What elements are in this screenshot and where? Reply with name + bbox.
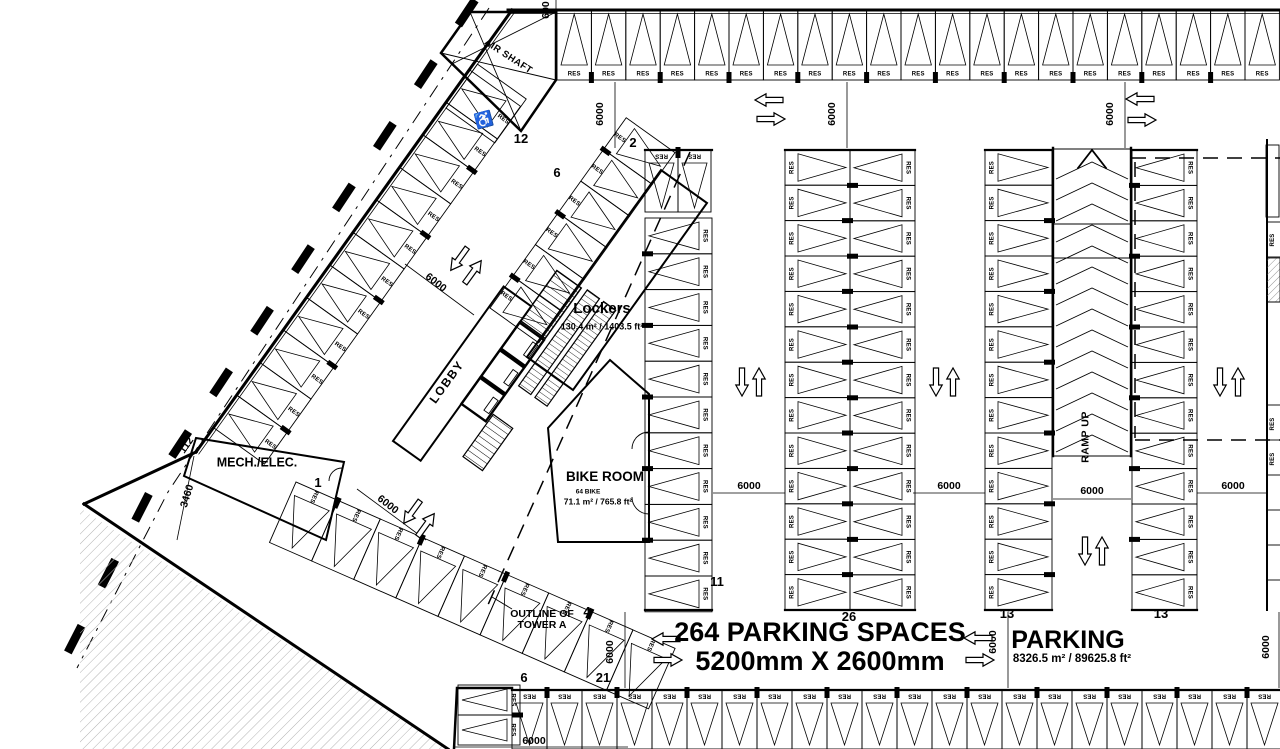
traffic-arrow	[1096, 537, 1108, 565]
leader-line	[492, 597, 512, 609]
svg-text:RES: RES	[1223, 693, 1236, 699]
dimension-label: 6000	[826, 102, 838, 126]
stall-count-labels: 12621112613134216	[314, 131, 1168, 685]
svg-text:RES: RES	[790, 232, 796, 245]
svg-text:RES: RES	[912, 72, 925, 78]
svg-text:RES: RES	[905, 303, 911, 316]
svg-text:RES: RES	[1187, 338, 1193, 351]
door-arc	[632, 497, 649, 514]
svg-text:RES: RES	[990, 409, 996, 422]
svg-text:RES: RES	[1084, 72, 1097, 78]
lockers-label: Lockers	[573, 301, 631, 317]
svg-text:RES: RES	[809, 72, 822, 78]
svg-text:RES: RES	[350, 508, 361, 522]
svg-text:RES: RES	[568, 72, 581, 78]
svg-text:RES: RES	[990, 586, 996, 599]
svg-text:RES: RES	[1187, 515, 1193, 528]
stair-small	[463, 414, 513, 470]
traffic-arrow	[460, 257, 486, 287]
svg-text:RES: RES	[990, 444, 996, 457]
svg-text:RES: RES	[905, 409, 911, 422]
svg-text:RES: RES	[1153, 693, 1166, 699]
svg-text:RES: RES	[1270, 418, 1276, 431]
svg-text:RES: RES	[768, 693, 781, 699]
svg-text:RES: RES	[790, 303, 796, 316]
svg-text:RES: RES	[981, 72, 994, 78]
svg-text:RES: RES	[392, 527, 403, 541]
stall-count: 1	[314, 475, 321, 490]
stall-group-colA: RESRESRESRESRESRESRESRESRESRESRES	[642, 218, 712, 612]
svg-text:RES: RES	[905, 161, 911, 174]
traffic-arrow	[753, 368, 765, 396]
svg-text:RES: RES	[1187, 409, 1193, 422]
traffic-arrow	[1079, 537, 1091, 565]
stall-count: 6	[520, 670, 527, 685]
floor-plan: RESRESRES RESRESRESRESRESRESRESRESRESRES…	[0, 0, 1280, 749]
svg-text:RES: RES	[790, 550, 796, 563]
dimension-label: 6000	[604, 640, 616, 664]
svg-text:RES: RES	[1187, 232, 1193, 245]
dimension-label: 600	[540, 1, 552, 19]
svg-text:RES: RES	[990, 550, 996, 563]
dimension-label: 6000	[1080, 485, 1104, 497]
elevator-1	[461, 378, 504, 421]
svg-text:RES: RES	[702, 373, 708, 386]
svg-text:RES: RES	[774, 72, 787, 78]
stall-group-bottom-left-pair: RESRES	[458, 685, 523, 745]
svg-text:RES: RES	[990, 267, 996, 280]
dimension-label: 6000	[594, 102, 606, 126]
svg-text:RES: RES	[702, 337, 708, 350]
svg-text:RES: RES	[790, 161, 796, 174]
dimension-label: 6000	[423, 271, 449, 295]
traffic-arrow	[930, 368, 942, 396]
bike-count-label: 64 BIKE	[576, 490, 601, 497]
svg-text:RES: RES	[943, 693, 956, 699]
bike-area-label: 71.1 m² / 765.8 ft²	[564, 498, 633, 507]
svg-text:RES: RES	[1013, 693, 1026, 699]
svg-text:RES: RES	[803, 693, 816, 699]
svg-text:RES: RES	[519, 582, 530, 596]
stall-group-colD: RESRESRESRESRESRESRESRESRESRESRESRESRES	[1129, 150, 1197, 610]
ramp-up-label: RAMP UP	[1080, 411, 1091, 463]
traffic-arrow	[1232, 368, 1244, 396]
traffic-arrow	[757, 113, 785, 125]
svg-text:RES: RES	[790, 267, 796, 280]
column-caps	[645, 150, 1197, 610]
svg-text:RES: RES	[705, 72, 718, 78]
title-spaces: 264 PARKING SPACES	[674, 618, 966, 646]
svg-text:RES: RES	[1015, 72, 1028, 78]
svg-text:RES: RES	[905, 197, 911, 210]
svg-text:RES: RES	[733, 693, 746, 699]
elevator-2	[481, 350, 524, 393]
svg-text:RES: RES	[510, 724, 516, 737]
svg-text:RES: RES	[1187, 267, 1193, 280]
svg-text:RES: RES	[946, 72, 959, 78]
svg-text:RES: RES	[602, 72, 615, 78]
svg-text:RES: RES	[477, 564, 488, 578]
svg-text:RES: RES	[637, 72, 650, 78]
svg-text:RES: RES	[990, 161, 996, 174]
svg-text:RES: RES	[1256, 72, 1269, 78]
svg-text:RES: RES	[702, 516, 708, 529]
svg-text:RES: RES	[1270, 234, 1276, 247]
svg-text:RES: RES	[790, 480, 796, 493]
stall-count: 21	[596, 670, 610, 685]
tower-outline-line2: TOWER A	[510, 620, 574, 631]
svg-text:RES: RES	[790, 373, 796, 386]
svg-text:RES: RES	[905, 586, 911, 599]
stall-group-colB-left: RESRESRESRESRESRESRESRESRESRESRESRESRES	[785, 150, 853, 610]
svg-text:RES: RES	[1118, 693, 1131, 699]
svg-text:RES: RES	[905, 267, 911, 280]
svg-text:RES: RES	[1187, 72, 1200, 78]
svg-text:RES: RES	[905, 338, 911, 351]
svg-text:RES: RES	[1048, 693, 1061, 699]
dimension-label: 6000	[737, 480, 761, 492]
stall-group-colC: RESRESRESRESRESRESRESRESRESRESRESRESRES	[985, 150, 1055, 610]
dimension-label: 6000	[987, 630, 999, 654]
stall-count: 13	[1154, 606, 1168, 621]
svg-text:RES: RES	[790, 338, 796, 351]
svg-text:RES: RES	[990, 303, 996, 316]
svg-text:RES: RES	[702, 229, 708, 242]
stall-count: 12	[514, 131, 528, 146]
svg-text:RES: RES	[702, 480, 708, 493]
svg-text:RES: RES	[978, 693, 991, 699]
svg-text:RES: RES	[698, 693, 711, 699]
dimension-label: 6000	[1221, 480, 1245, 492]
svg-text:RES: RES	[1187, 444, 1193, 457]
traffic-arrow	[1128, 114, 1156, 126]
svg-text:RES: RES	[1188, 693, 1201, 699]
bike-room	[548, 360, 649, 542]
parking-area: 8326.5 m² / 89625.8 ft²	[1013, 653, 1131, 665]
dimension-label: 6000	[375, 493, 401, 517]
stall-count: 4	[583, 604, 591, 619]
svg-text:RES: RES	[593, 693, 606, 699]
svg-text:RES: RES	[790, 586, 796, 599]
svg-text:RES: RES	[523, 693, 536, 699]
dimension-label: 6000	[937, 480, 961, 492]
svg-text:RES: RES	[790, 444, 796, 457]
ramp-arrow	[1078, 150, 1106, 168]
traffic-arrow	[947, 368, 959, 396]
svg-text:RES: RES	[1187, 586, 1193, 599]
svg-text:RES: RES	[905, 551, 911, 564]
stall-count: 13	[1000, 606, 1014, 621]
mech-elec-label: MECH./ELEC.	[217, 456, 298, 469]
svg-text:RES: RES	[990, 338, 996, 351]
dimension-label: 6000	[1104, 102, 1116, 126]
dimension-label: 6000	[522, 735, 546, 747]
traffic-arrow	[1214, 368, 1226, 396]
svg-text:RES: RES	[702, 444, 708, 457]
svg-text:RES: RES	[905, 480, 911, 493]
svg-text:RES: RES	[790, 515, 796, 528]
svg-text:RES: RES	[308, 490, 319, 504]
svg-text:RES: RES	[1153, 72, 1166, 78]
svg-text:RES: RES	[1187, 480, 1193, 493]
svg-text:RES: RES	[873, 693, 886, 699]
title-stall-size: 5200mm X 2600mm	[695, 647, 944, 675]
svg-text:RES: RES	[790, 196, 796, 209]
svg-text:RES: RES	[990, 196, 996, 209]
dimension-label: 6000	[1260, 635, 1272, 659]
svg-text:RES: RES	[603, 619, 614, 633]
ramp	[1053, 148, 1131, 456]
svg-text:RES: RES	[905, 232, 911, 245]
svg-text:RES: RES	[877, 72, 890, 78]
svg-text:RES: RES	[838, 693, 851, 699]
traffic-arrow	[413, 510, 439, 540]
svg-text:RES: RES	[905, 515, 911, 528]
svg-text:RES: RES	[1049, 72, 1062, 78]
stall-group-colB-right: RESRESRESRESRESRESRESRESRESRESRESRESRES	[847, 150, 915, 610]
svg-text:RES: RES	[663, 693, 676, 699]
svg-text:RES: RES	[702, 552, 708, 565]
svg-text:RES: RES	[671, 72, 684, 78]
svg-text:RES: RES	[1187, 374, 1193, 387]
right-edge-stalls: RESRESRES	[1266, 140, 1280, 610]
svg-text:RES: RES	[510, 694, 516, 707]
svg-text:RES: RES	[558, 693, 571, 699]
svg-text:RES: RES	[1270, 453, 1276, 466]
svg-text:RES: RES	[990, 373, 996, 386]
svg-text:RES: RES	[655, 153, 668, 159]
svg-text:RES: RES	[1083, 693, 1096, 699]
svg-text:RES: RES	[435, 545, 446, 559]
svg-text:RES: RES	[702, 408, 708, 421]
svg-text:RES: RES	[990, 232, 996, 245]
stall-count: 6	[553, 165, 560, 180]
svg-text:RES: RES	[905, 444, 911, 457]
svg-text:RES: RES	[702, 265, 708, 278]
svg-text:RES: RES	[1187, 161, 1193, 174]
svg-text:RES: RES	[1187, 197, 1193, 210]
door-arc	[632, 432, 649, 449]
stall-count: 2	[629, 135, 636, 150]
traffic-arrow	[736, 368, 748, 396]
stall-group-bottom-row: RESRESRESRESRESRESRESRESRESRESRESRESRESR…	[512, 687, 1280, 749]
lockers-area: 130.4 m² / 1403.5 ft²	[561, 322, 644, 331]
bike-room-label: BIKE ROOM	[566, 470, 644, 484]
svg-text:RES: RES	[908, 693, 921, 699]
svg-text:RES: RES	[1187, 303, 1193, 316]
svg-text:RES: RES	[1221, 72, 1234, 78]
svg-text:RES: RES	[740, 72, 753, 78]
svg-text:RES: RES	[1258, 693, 1271, 699]
svg-text:RES: RES	[1118, 72, 1131, 78]
svg-text:RES: RES	[990, 515, 996, 528]
traffic-arrow	[755, 94, 783, 106]
stall-count: 11	[710, 574, 724, 589]
svg-text:RES: RES	[702, 301, 708, 314]
traffic-arrow	[966, 654, 994, 666]
svg-text:RES: RES	[702, 587, 708, 600]
svg-text:RES: RES	[688, 153, 701, 159]
stall-group-top-row: RESRESRESRESRESRESRESRESRESRESRESRESRESR…	[557, 10, 1279, 83]
svg-text:RES: RES	[790, 409, 796, 422]
svg-text:RES: RES	[905, 374, 911, 387]
dimension-label: 3460	[178, 483, 196, 509]
svg-text:RES: RES	[843, 72, 856, 78]
traffic-arrow	[1126, 93, 1154, 105]
tower-outline-note: OUTLINE OF TOWER A	[510, 609, 574, 631]
traffic-arrow	[446, 244, 472, 274]
svg-text:RES: RES	[1187, 551, 1193, 564]
parking-title: PARKING	[1011, 627, 1124, 653]
svg-text:RES: RES	[990, 480, 996, 493]
